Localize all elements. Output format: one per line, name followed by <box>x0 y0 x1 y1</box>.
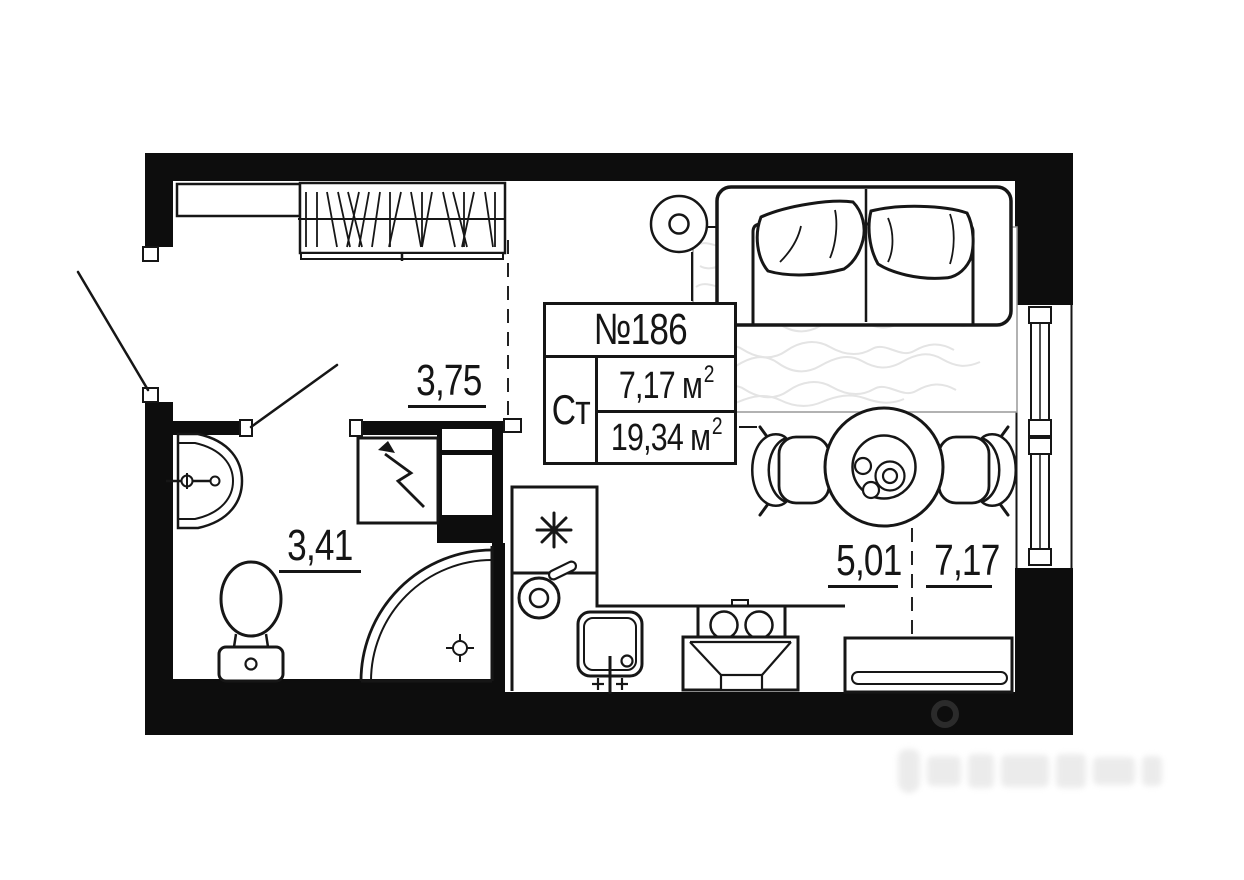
chair-seat <box>779 437 829 503</box>
bathroom-jamb-right <box>350 420 362 436</box>
hallway-shelf <box>177 184 300 216</box>
kitchen-sink <box>578 612 642 694</box>
bathroom-door-leaf <box>251 365 337 427</box>
wall-right-upper <box>1015 153 1073 305</box>
wall-left-upper <box>145 153 173 247</box>
entrance-jamb-top <box>143 247 158 261</box>
kitchen-bench <box>845 638 1012 692</box>
entrance-door-leaf <box>78 272 148 390</box>
dim-kitchen: 5,01 <box>828 539 898 588</box>
dim-living: 7,17 <box>926 539 992 588</box>
dim-hallway: 3,75 <box>408 359 486 408</box>
fridge-snowflake-icon <box>537 513 571 547</box>
table-plate-1 <box>855 458 871 474</box>
stove <box>683 600 798 690</box>
entrance-jamb-bottom <box>143 388 158 402</box>
window <box>1015 305 1073 568</box>
watermark-logo <box>898 742 1198 800</box>
bathroom-sink <box>166 434 242 528</box>
living-area-value: 7,17м2 <box>598 358 734 413</box>
bench-slot <box>852 672 1007 684</box>
ceiling-lamp-icon <box>651 196 707 252</box>
toilet <box>219 562 283 681</box>
unit-number: №186 <box>546 305 734 358</box>
wall-top <box>145 153 1073 181</box>
wall-right-lower <box>1015 568 1073 735</box>
counter-front-edge <box>597 573 845 606</box>
wall-left-lower <box>145 402 173 694</box>
wardrobe <box>298 183 506 261</box>
doors <box>78 272 337 427</box>
bathroom-jamb-left <box>240 420 252 436</box>
sofa <box>717 187 1011 325</box>
table-bowl-inner <box>883 469 897 483</box>
total-area-value: 19,34м2 <box>598 410 734 462</box>
shower-drain-icon <box>446 634 474 662</box>
dim-bathroom: 3,41 <box>279 524 361 573</box>
vent-shaft-openings <box>442 429 492 515</box>
wall-bath-kitchen <box>492 543 505 691</box>
kitchen <box>512 487 1012 694</box>
sofa-pillow-left <box>757 201 864 275</box>
floorplan-canvas: №186 Ст 7,17м2 19,34м2 3,75 3,41 5,01 7,… <box>0 0 1244 880</box>
water-heater <box>358 438 438 523</box>
shower <box>361 546 492 681</box>
table-plate-2 <box>863 482 879 498</box>
unit-type-label: Ст <box>546 358 598 462</box>
unit-info-box: №186 Ст 7,17м2 19,34м2 <box>543 302 737 465</box>
wall-bathroom-top-b <box>362 421 437 435</box>
chair-left <box>752 427 829 515</box>
dining-table <box>825 408 943 526</box>
wall-endcap <box>504 419 521 432</box>
chair-right <box>939 427 1016 515</box>
sofa-pillow-right <box>869 206 973 278</box>
watermark-ring-icon <box>931 700 959 728</box>
